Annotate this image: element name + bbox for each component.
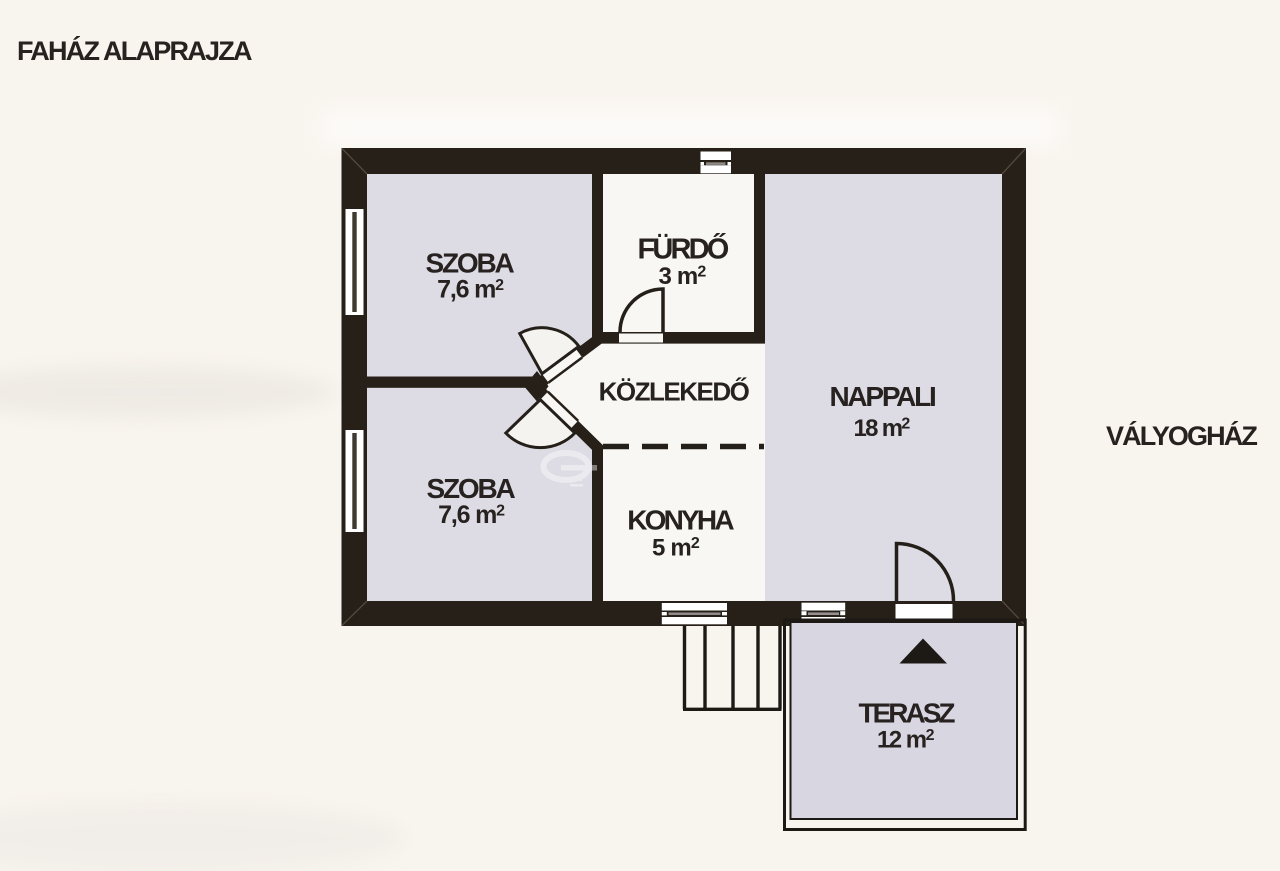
svg-text:FAHÁZ ALAPRAJZA: FAHÁZ ALAPRAJZA	[17, 35, 252, 66]
svg-text:TERASZ: TERASZ	[859, 698, 956, 729]
svg-text:7,6 m2: 7,6 m2	[437, 276, 504, 304]
svg-text:FÜRDŐ: FÜRDŐ	[637, 232, 728, 266]
svg-text:SZOBA: SZOBA	[425, 248, 514, 279]
svg-text:SZOBA: SZOBA	[426, 473, 515, 504]
svg-text:KONYHA: KONYHA	[627, 505, 734, 536]
svg-text:NAPPALI: NAPPALI	[829, 381, 935, 412]
svg-text:7,6 m2: 7,6 m2	[438, 501, 505, 529]
svg-text:VÁLYOGHÁZ: VÁLYOGHÁZ	[1106, 420, 1257, 451]
svg-text:KÖZLEKEDŐ: KÖZLEKEDŐ	[599, 377, 750, 407]
